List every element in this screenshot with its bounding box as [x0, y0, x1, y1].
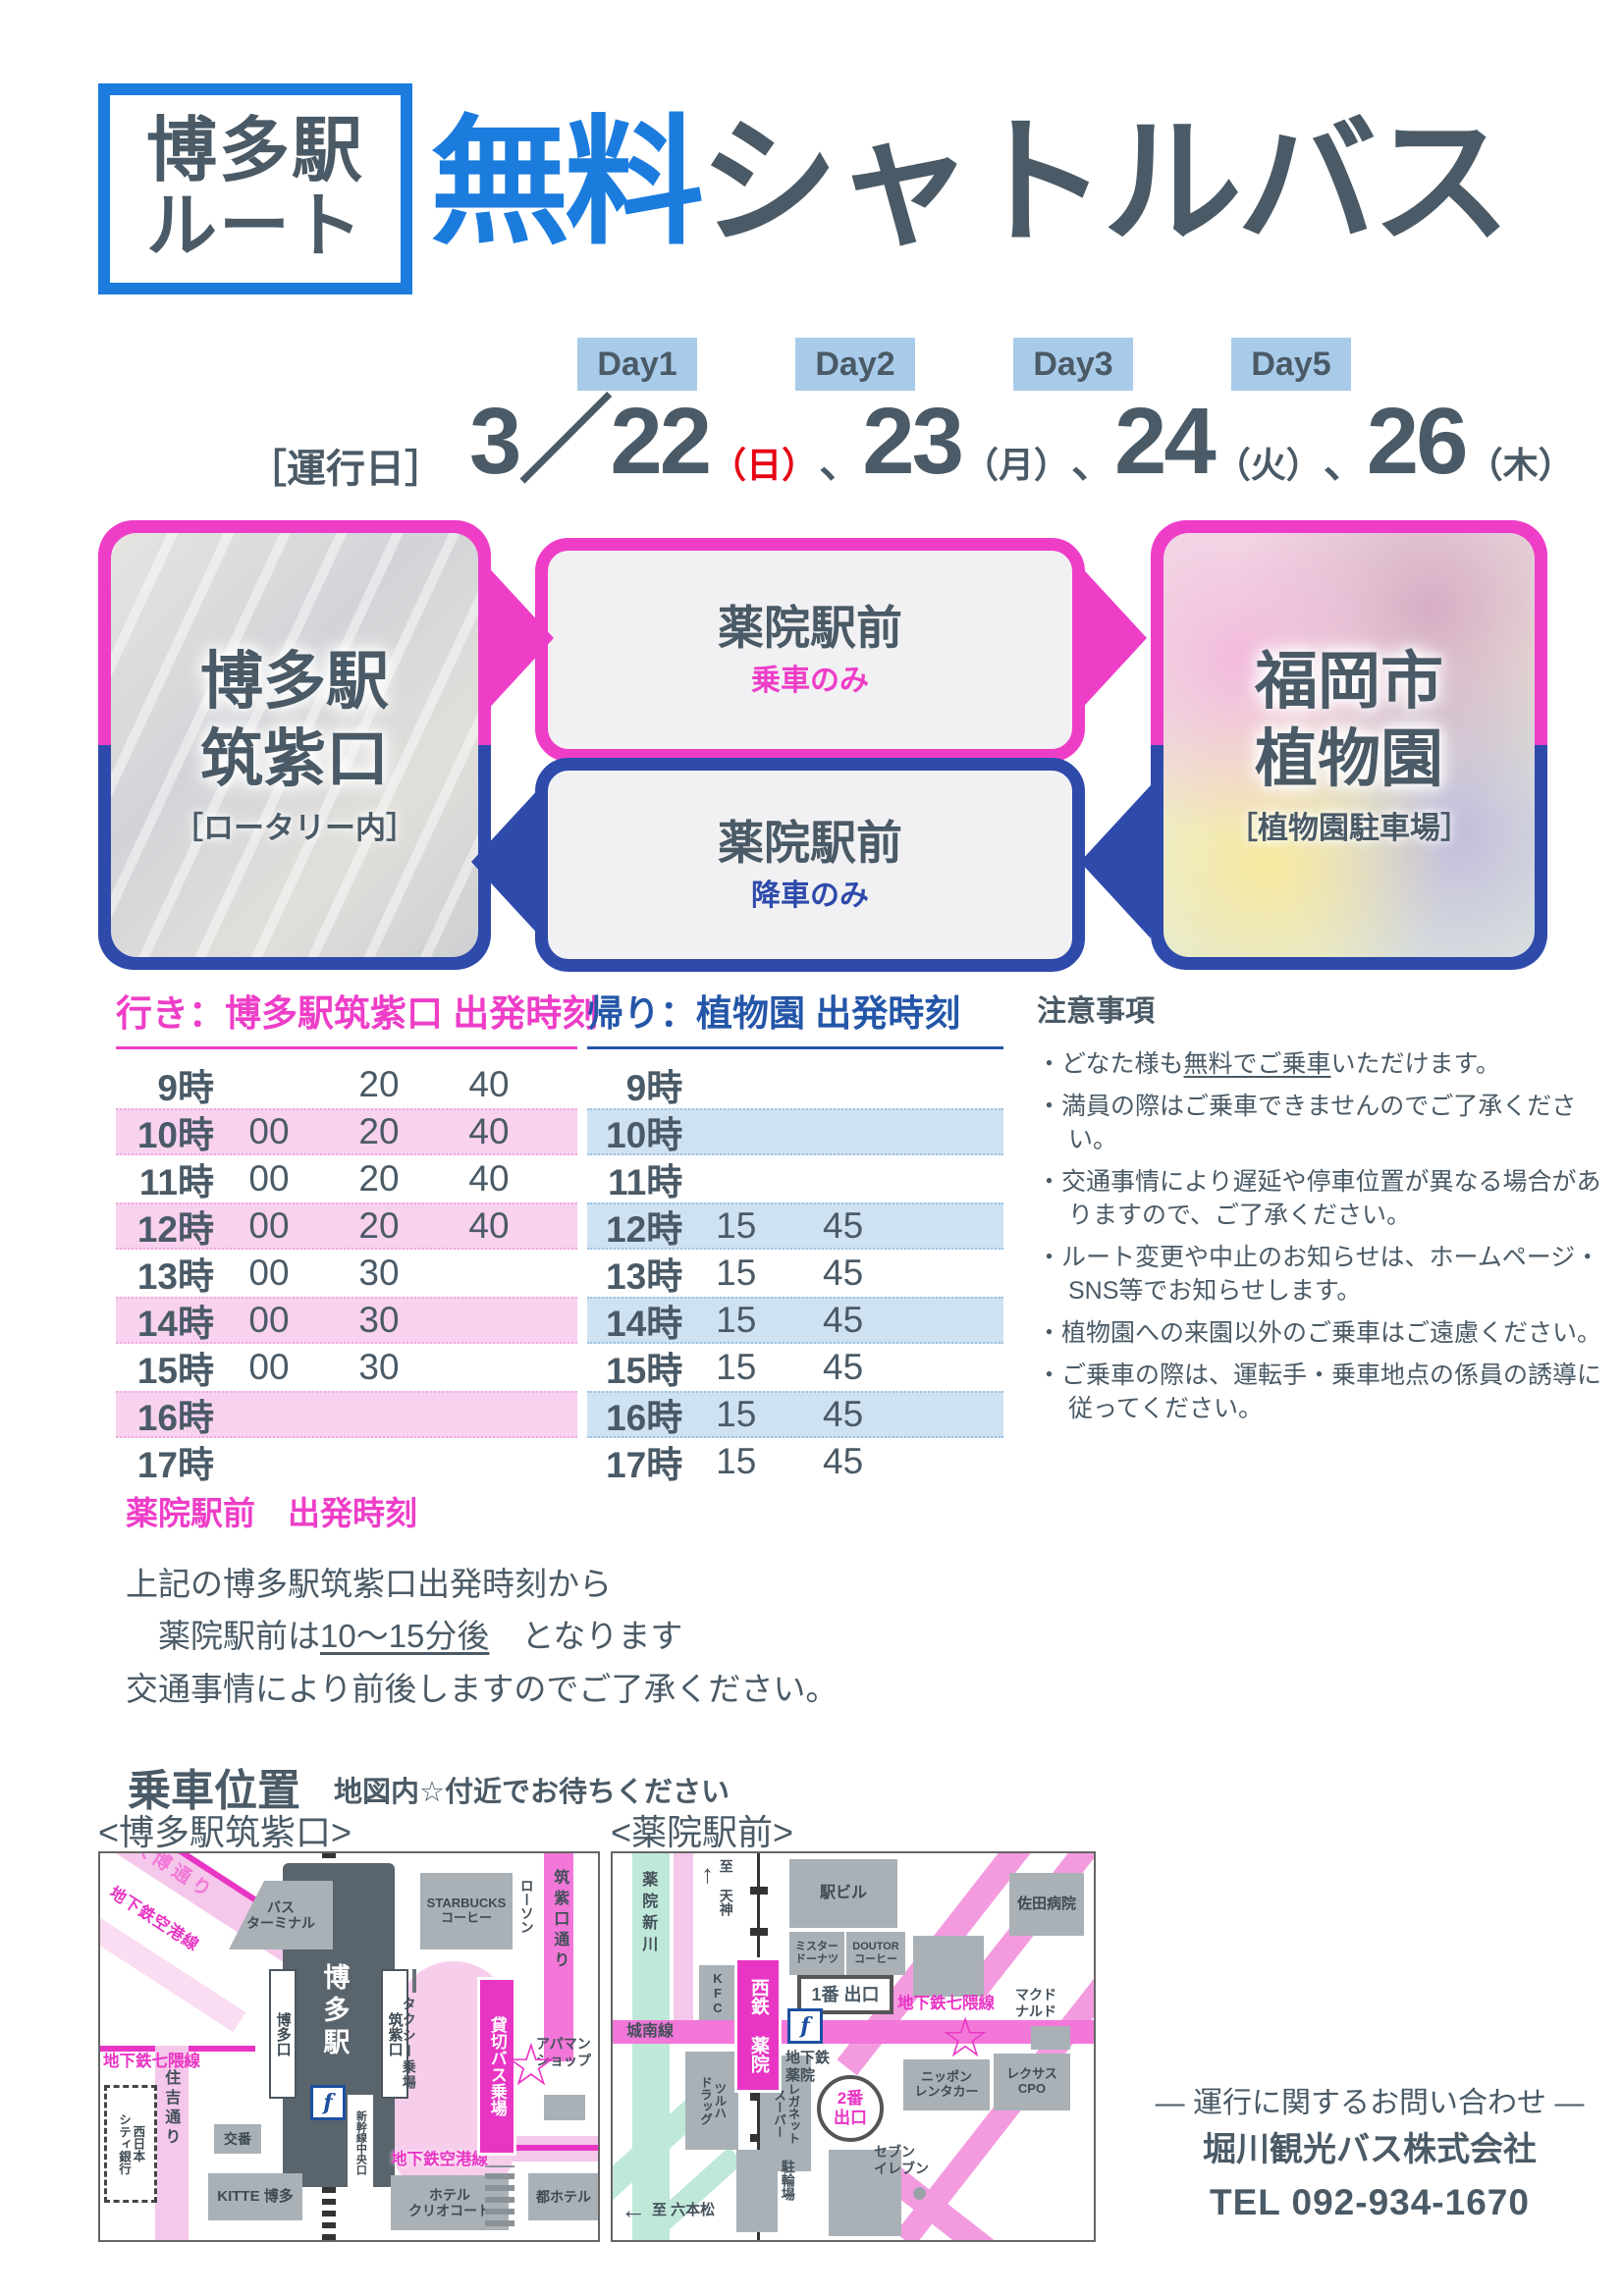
bicycle-parking-building: [736, 2150, 778, 2232]
date-weekday: （月）: [961, 448, 1071, 489]
timetable-time: 00: [214, 1111, 324, 1152]
starbucks-building: STARBUCKS コーヒー: [420, 1873, 513, 1949]
map-caption-yakuin: <薬院駅前>: [611, 1804, 793, 1855]
timetable-time: 20: [324, 1111, 434, 1152]
date-number: 23: [862, 395, 961, 489]
garden-name-line1: 福岡市: [1255, 643, 1443, 720]
timetable-time: 15: [682, 1205, 789, 1247]
return-timetable: 帰り：植物園 出発時刻 9時10時11時12時154513時154514時154…: [587, 984, 1003, 1485]
to-tenjin: ↑至 天神: [701, 1859, 734, 1916]
timetable-time: 00: [214, 1347, 324, 1388]
timetable-time: 15: [682, 1300, 789, 1341]
note-item: ・交通事情により遅延や停車位置が異なる場合がありますので、ご了承ください。: [1037, 1165, 1611, 1232]
timetable-row: 13時0030: [116, 1250, 577, 1297]
notes-title: 注意事項: [1037, 987, 1611, 1030]
garden-note: ［植物園駐車場］: [1227, 803, 1471, 847]
timetable-time: 20: [324, 1064, 434, 1105]
timetable-hour: 13時: [587, 1247, 682, 1300]
yakuin-info-line2-underline: 10～15分後: [320, 1618, 489, 1654]
stop-card-yakuin-return: 薬院駅前 降車のみ: [535, 758, 1085, 972]
timetable-time: 30: [324, 1253, 434, 1294]
note-bullet: ・: [1037, 1093, 1061, 1120]
return-rule: [587, 1046, 1003, 1049]
outbound-timetable: 行き：博多駅筑紫口 出発時刻 9時204010時00204011時0020401…: [116, 984, 577, 1485]
lexus-cpo-building: レクサス CPO: [994, 2054, 1070, 2110]
page-title-rest: シャトルバス: [699, 105, 1506, 261]
timetable-hour: 16時: [116, 1388, 214, 1441]
sada-hospital-building: 佐田病院: [1009, 1873, 1084, 1936]
note-item: ・ルート変更や中止のお知らせは、ホームページ・SNS等でお知らせします。: [1037, 1241, 1611, 1308]
timetable-hour: 16時: [587, 1388, 682, 1441]
map-yakuin: 駅ビル ミスター ドーナツ DOUTOR コーヒー 佐田病院 KFC 1番 出口…: [611, 1851, 1096, 2242]
route-badge: 博多駅 ルート: [98, 83, 412, 294]
timetable-hour: 14時: [116, 1294, 214, 1347]
flyer-page: 博多駅 ルート 無料シャトルバス Day1 Day2 Day3 Day5 ［運行…: [0, 0, 1623, 2296]
note-text: 無料でご乗車: [1184, 1050, 1331, 1078]
timetable-time: 45: [789, 1300, 896, 1341]
timetable-time: 15: [682, 1253, 789, 1294]
chikatetsu-yakuin-label: 地下鉄 薬院: [785, 2050, 830, 2085]
yakuin-return-title: 薬院駅前: [718, 820, 902, 866]
outbound-timetable-title: 行き：博多駅筑紫口 出発時刻: [116, 984, 577, 1037]
timetable-time: 45: [789, 1205, 896, 1247]
nanakuma-line-label: 地下鉄七隈線: [103, 2053, 200, 2072]
timetable-row: 9時2040: [116, 1061, 577, 1108]
stop-card-hakata: 博多駅 筑紫口 ［ロータリー内］: [98, 520, 491, 970]
boarding-star-icon: ☆: [941, 2010, 990, 2065]
garden-name-line2: 植物園: [1255, 721, 1443, 797]
bicycle-parking-label: 駐輪場: [780, 2160, 796, 2201]
timetable-time: 00: [214, 1253, 324, 1294]
map-crosswalk: [485, 2165, 514, 2226]
timetable-row: 10時002040: [116, 1108, 577, 1155]
date-number: 26: [1367, 395, 1466, 489]
timetable-row: 14時1545: [587, 1297, 1003, 1344]
exit-hakata-strip: 博多口: [269, 1969, 297, 2099]
timetable-row: 17時: [116, 1438, 577, 1485]
timetable-time: 20: [324, 1205, 434, 1247]
note-text: 植物園への来園以外のご乗車はご遠慮ください。: [1061, 1319, 1601, 1347]
shinkansen-exit-strip: 新幹線中央口: [348, 2095, 373, 2191]
route-arrow-right-icon: [483, 561, 554, 715]
notes-list: ・どなた様も無料でご乗車いただけます。・満員の際はご乗車できませんのでご了承くだ…: [1037, 1047, 1611, 1425]
timetable-row: 16時1545: [587, 1391, 1003, 1438]
bank-label: 西日本 シティ銀行: [117, 2113, 145, 2175]
timetable-row: 15時1545: [587, 1344, 1003, 1391]
timetable-time: 40: [434, 1064, 544, 1105]
timetable-hour: 13時: [116, 1247, 214, 1300]
eki-building: 駅ビル: [789, 1859, 897, 1928]
timetable-row: 12時1545: [587, 1202, 1003, 1250]
kfc-building: KFC: [699, 1965, 734, 2020]
yakuin-info-title: 薬院駅前 出発時刻: [126, 1487, 838, 1534]
seven-eleven-label: セブン イレブン: [874, 2144, 929, 2177]
note-item: ・植物園への来園以外のご乗車はご遠慮ください。: [1037, 1316, 1611, 1350]
mcdonalds-building: [1031, 2026, 1070, 2050]
date-number: 24: [1114, 395, 1214, 489]
note-bullet: ・: [1037, 1050, 1061, 1078]
jonan-line-label: 城南線: [626, 2022, 674, 2041]
map-hakata: 博多駅 博多口 筑紫口 新幹線中央口 f バス ターミナル STARBUCKS …: [98, 1851, 600, 2242]
page-title: 無料シャトルバス: [430, 86, 1506, 282]
map-jonan-road: [613, 2020, 1096, 2044]
timetable-hour: 9時: [587, 1058, 682, 1111]
note-bullet: ・: [1037, 1362, 1061, 1389]
note-text: 交通事情により遅延や停車位置が異なる場合がありますので、ご了承ください。: [1061, 1168, 1601, 1229]
chikushi-dori-label: 筑紫口通り: [550, 1869, 568, 1972]
yakuin-info-line1: 上記の博多駅筑紫口出発時刻から: [126, 1558, 838, 1610]
lawson-label: ローソン: [518, 1879, 535, 1934]
sumiyoshi-dori-label: 住吉通り: [161, 2069, 180, 2148]
timetable-time: 40: [434, 1111, 544, 1152]
operating-dates: 3／22 （日） 、 23 （月） 、 24 （火） 、 26 （木）: [469, 395, 1576, 489]
timetable-hour: 10時: [116, 1105, 214, 1158]
contact-phone: TEL 092-934-1670: [1114, 2175, 1623, 2230]
timetable-row: 14時0030: [116, 1297, 577, 1344]
timetable-hour: 10時: [587, 1105, 682, 1158]
note-item: ・満員の際はご乗車できませんのでご了承ください。: [1037, 1090, 1611, 1156]
to-ropponmatsu-label: 至 六本松: [652, 2202, 715, 2219]
map-dot: [913, 2187, 926, 2200]
bank-building: 西日本 シティ銀行: [104, 2085, 157, 2203]
note-text: ご乗車の際は、運転手・乗車地点の係員の誘導に従ってください。: [1061, 1362, 1601, 1422]
timetable-time: 45: [789, 1347, 896, 1388]
miyako-hotel-building: 都ホテル: [528, 2173, 599, 2220]
yakuin-return-sub: 降車のみ: [751, 881, 869, 911]
route-badge-line1: 博多駅: [146, 114, 364, 188]
timetable-time: 00: [214, 1205, 324, 1247]
note-text: いただけます。: [1331, 1050, 1501, 1078]
left-arrow-icon: ←: [621, 2195, 646, 2225]
timetable-time: 30: [324, 1347, 434, 1388]
stop-card-yakuin-outbound: 薬院駅前 乗車のみ: [535, 538, 1085, 762]
hakata-name-line2: 筑紫口: [200, 721, 389, 797]
day-label-1: Day1: [577, 338, 697, 391]
hakata-name-line1: 博多駅: [200, 643, 389, 720]
day-label-3: Day3: [1013, 338, 1133, 391]
yakuin-outbound-title: 薬院駅前: [718, 605, 902, 651]
yakuin-info-line2-pre: 薬院駅前は: [126, 1618, 320, 1654]
page-title-free: 無料: [430, 105, 699, 261]
date-weekday: （日）: [709, 448, 819, 489]
date-number: 3／22: [469, 395, 709, 489]
note-text: ルート変更や中止のお知らせは、ホームページ・SNS等でお知らせします。: [1061, 1244, 1599, 1305]
mister-donut-building: ミスター ドーナツ: [789, 1932, 844, 1975]
timetable-row: 13時1545: [587, 1250, 1003, 1297]
note-text: どなた様も: [1061, 1050, 1184, 1078]
note-bullet: ・: [1037, 1168, 1061, 1196]
apaman-building: [544, 2095, 585, 2120]
contact-section: ― 運行に関するお問い合わせ ― 堀川観光バス株式会社 TEL 092-934-…: [1114, 2081, 1623, 2230]
yakuin-info-line2: 薬院駅前は10～15分後 となります: [126, 1610, 838, 1662]
timetable-hour: 17時: [116, 1435, 214, 1488]
hakata-note: ［ロータリー内］: [173, 803, 416, 847]
timetable-row: 16時: [116, 1391, 577, 1438]
timetable-time: 45: [789, 1441, 896, 1482]
koban-building: 交番: [214, 2124, 261, 2154]
date-separator: 、: [1324, 442, 1367, 489]
kitte-building: KITTE 博多: [208, 2173, 302, 2220]
shinkansen-exit-label: 新幹線中央口: [354, 2110, 367, 2175]
timetable-row: 12時002040: [116, 1202, 577, 1250]
exit2-circle: 2番 出口: [817, 2075, 884, 2142]
timetable-time: 40: [434, 1205, 544, 1247]
route-arrow-left-icon: [471, 785, 542, 938]
timetable-time: 15: [682, 1394, 789, 1435]
route-badge-line2: ルート: [146, 189, 364, 264]
date-weekday: （火）: [1214, 448, 1324, 489]
note-item: ・ご乗車の際は、運転手・乗車地点の係員の誘導に従ってください。: [1037, 1359, 1611, 1425]
nishitetsu-yakuin-label: 西鉄 薬院: [747, 1978, 769, 2073]
map-road: [674, 1853, 693, 2026]
timetable-time: 45: [789, 1253, 896, 1294]
mcdonalds-label: マクド ナルド: [1015, 1987, 1056, 2020]
contact-company: 堀川観光バス株式会社: [1114, 2125, 1623, 2175]
outbound-rule: [116, 1046, 577, 1049]
timetable-row: 9時: [587, 1061, 1003, 1108]
day-label-5: Day5: [1231, 338, 1351, 391]
map-railway: [322, 2187, 336, 2242]
boarding-star-icon: ☆: [505, 2036, 558, 2095]
timetable-hour: 14時: [587, 1294, 682, 1347]
timetable-hour: 15時: [587, 1341, 682, 1394]
nishitetsu-yakuin-box: 西鉄 薬院: [734, 1957, 782, 2093]
timetable-row: 17時1545: [587, 1438, 1003, 1485]
charter-bus-stop-label: 貸切バス乗場: [487, 2016, 507, 2116]
timetable-time: 00: [214, 1158, 324, 1200]
daihaku-dori-label: 大博通り: [128, 1851, 219, 1905]
map-caption-hakata: <博多駅筑紫口>: [98, 1804, 352, 1855]
taxi-stand-label: タクシー乗場: [401, 1997, 417, 2091]
yakuin-info-line2-post: となります: [489, 1618, 682, 1654]
timetable-time: 40: [434, 1158, 544, 1200]
day-label-2: Day2: [795, 338, 915, 391]
timetable-row: 11時002040: [116, 1155, 577, 1202]
timetable-row: 15時0030: [116, 1344, 577, 1391]
timetable-hour: 12時: [587, 1200, 682, 1253]
station-name-label: 博多駅: [318, 1963, 350, 2060]
tsuruha-building: ツルハ ドラッグ: [685, 2052, 738, 2150]
garden-name: 福岡市 植物園: [1255, 643, 1443, 796]
route-arrow-left-icon: [1080, 785, 1151, 938]
yakuin-departure-info: 薬院駅前 出発時刻 上記の博多駅筑紫口出発時刻から 薬院駅前は10～15分後 と…: [126, 1487, 838, 1715]
stop-card-garden: 福岡市 植物園 ［植物園駐車場］: [1151, 520, 1547, 970]
timetable-hour: 11時: [116, 1152, 214, 1205]
kuko-line-bottom-label: 地下鉄空港線: [391, 2151, 488, 2170]
note-bullet: ・: [1037, 1244, 1061, 1271]
return-rows: 9時10時11時12時154513時154514時154515時154516時1…: [587, 1061, 1003, 1485]
timetable-time: 15: [682, 1347, 789, 1388]
date-separator: 、: [819, 442, 862, 489]
timetable-time: 45: [789, 1394, 896, 1435]
note-text: 満員の際はご乗車できませんのでご了承ください。: [1061, 1093, 1576, 1153]
yakuin-outbound-sub: 乗車のみ: [751, 667, 869, 696]
nishitetsu-logo-icon: f: [310, 2085, 346, 2120]
timetable-time: 00: [214, 1300, 324, 1341]
note-bullet: ・: [1037, 1319, 1061, 1347]
map-building: [913, 1936, 984, 1997]
kfc-label: KFC: [710, 1971, 725, 2015]
doutor-building: DOUTOR コーヒー: [846, 1932, 905, 1975]
timetable-hour: 9時: [116, 1058, 214, 1111]
timetable-time: 20: [324, 1158, 434, 1200]
to-ropponmatsu: ←至 六本松: [621, 2195, 715, 2225]
timetable-row: 11時: [587, 1155, 1003, 1202]
route-arrow-right-icon: [1076, 561, 1147, 715]
note-item: ・どなた様も無料でご乗車いただけます。: [1037, 1047, 1611, 1081]
timetable-hour: 11時: [587, 1152, 682, 1205]
yakuin-shinkawa-label: 薬院新川: [638, 1871, 657, 1957]
to-tenjin-label: 至 天神: [718, 1859, 734, 1916]
timetable-time: 30: [324, 1300, 434, 1341]
up-arrow-icon: ↑: [701, 1859, 714, 1890]
yakuin-info-line3: 交通事情により前後しますのでご了承ください。: [126, 1663, 838, 1715]
date-weekday: （木）: [1466, 448, 1576, 489]
return-timetable-title: 帰り：植物園 出発時刻: [587, 984, 1003, 1037]
timetable-hour: 15時: [116, 1341, 214, 1394]
date-separator: 、: [1071, 442, 1114, 489]
tsuruha-label: ツルハ ドラッグ: [698, 2076, 727, 2125]
nishitetsu-logo-icon: f: [787, 2008, 823, 2044]
timetable-time: 15: [682, 1441, 789, 1482]
timetable-hour: 12時: [116, 1200, 214, 1253]
hakata-photo: 博多駅 筑紫口 ［ロータリー内］: [111, 533, 478, 957]
operating-days-label: ［運行日］: [247, 437, 444, 494]
exit-hakata-label: 博多口: [274, 2012, 291, 2056]
hakata-name: 博多駅 筑紫口: [200, 643, 389, 796]
timetable-row: 10時: [587, 1108, 1003, 1155]
timetable-hour: 17時: [587, 1435, 682, 1488]
garden-photo: 福岡市 植物園 ［植物園駐車場］: [1163, 533, 1535, 957]
outbound-rows: 9時204010時00204011時00204012時00204013時0030…: [116, 1061, 577, 1485]
notes-section: 注意事項 ・どなた様も無料でご乗車いただけます。・満員の際はご乗車できませんので…: [1037, 987, 1611, 1434]
contact-heading: ― 運行に関するお問い合わせ ―: [1114, 2081, 1623, 2125]
